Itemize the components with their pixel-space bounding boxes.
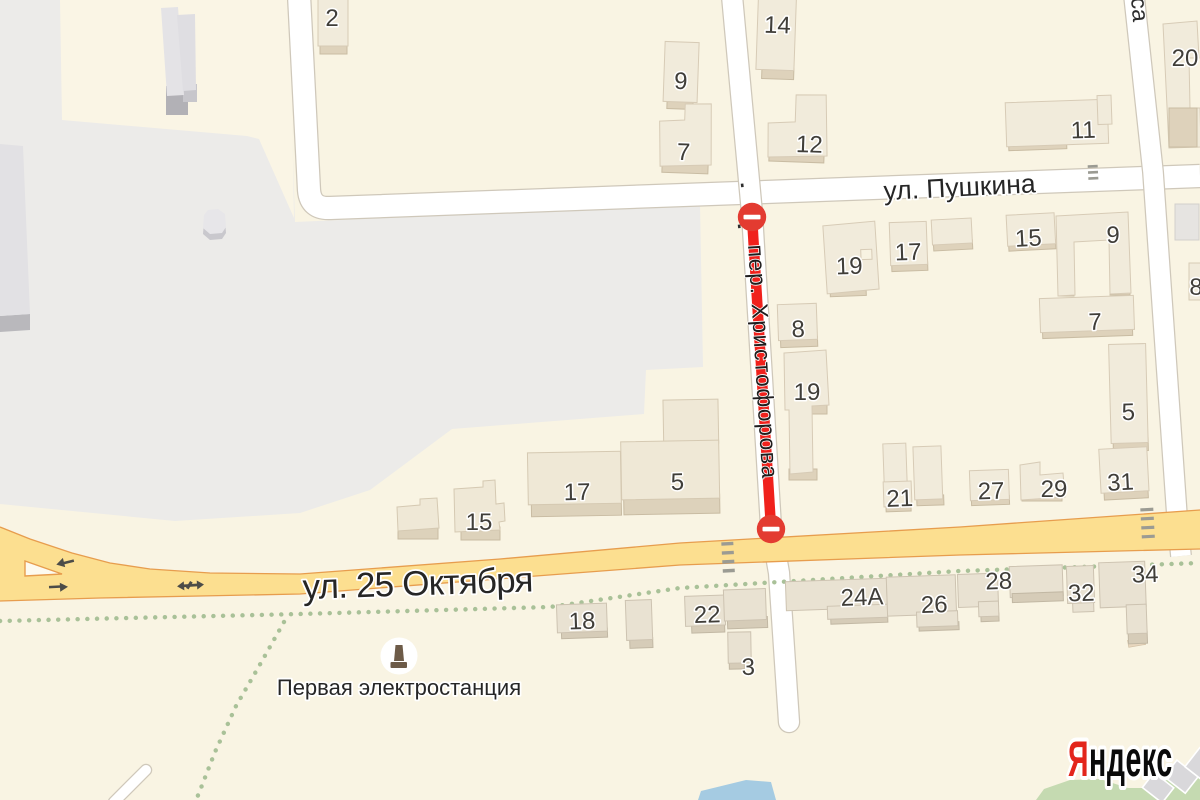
svg-text:9: 9: [1106, 222, 1119, 249]
svg-text:11: 11: [1070, 117, 1096, 145]
svg-text:17: 17: [564, 479, 591, 506]
svg-text:15: 15: [466, 509, 493, 536]
svg-text:26: 26: [920, 591, 948, 619]
svg-text:17: 17: [894, 239, 922, 267]
svg-text:19: 19: [835, 253, 863, 281]
svg-text:21: 21: [886, 485, 914, 513]
svg-text:8: 8: [1189, 274, 1200, 301]
svg-text:2: 2: [325, 5, 338, 32]
svg-text:7: 7: [676, 139, 690, 166]
svg-text:12: 12: [796, 131, 824, 159]
svg-text:Яндекс: Яндекс: [1068, 731, 1173, 788]
svg-text:27: 27: [977, 478, 1005, 506]
svg-text:15: 15: [1014, 224, 1042, 252]
svg-text:8: 8: [791, 316, 805, 343]
svg-text:9: 9: [674, 68, 688, 95]
svg-text:5: 5: [1121, 399, 1135, 426]
svg-text:3: 3: [741, 654, 755, 681]
svg-text:Первая электростанция: Первая электростанция: [277, 675, 521, 700]
svg-text:20: 20: [1172, 45, 1199, 72]
svg-text:18: 18: [568, 608, 596, 636]
svg-text:14: 14: [764, 12, 792, 40]
svg-text:32: 32: [1067, 580, 1095, 608]
svg-text:7: 7: [1088, 308, 1102, 335]
svg-text:са: са: [1126, 0, 1154, 23]
svg-text:29: 29: [1041, 476, 1068, 503]
svg-text:31: 31: [1107, 469, 1135, 497]
svg-text:22: 22: [693, 601, 721, 629]
svg-text:19: 19: [794, 379, 821, 406]
svg-text:28: 28: [985, 568, 1013, 596]
svg-text:24А: 24А: [840, 583, 884, 611]
svg-text:5: 5: [670, 469, 684, 496]
svg-text:34: 34: [1131, 561, 1159, 589]
svg-text:ул. 25 Октября: ул. 25 Октября: [302, 560, 533, 607]
